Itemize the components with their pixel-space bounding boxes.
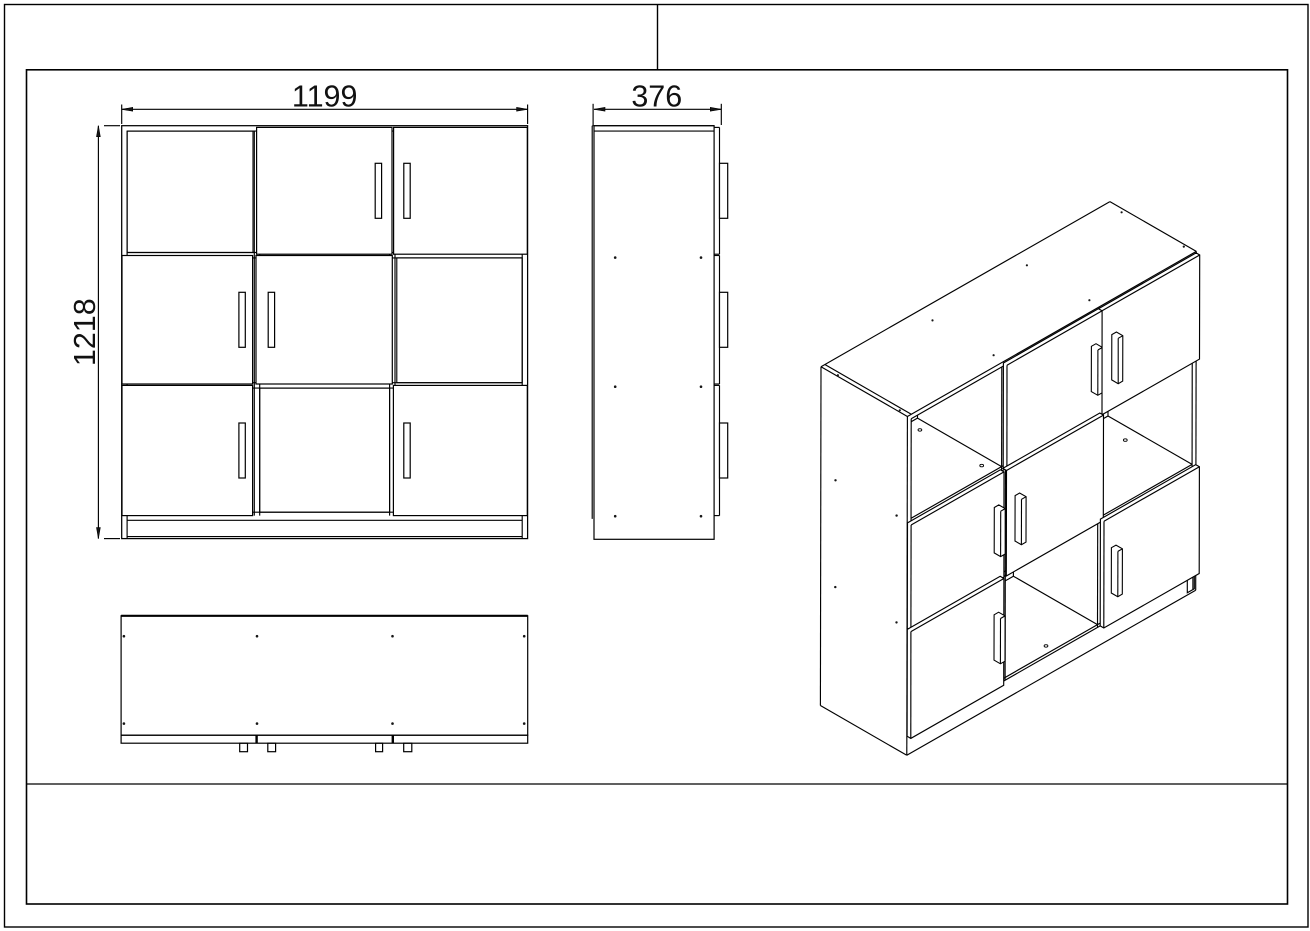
svg-text:1199: 1199 [292,79,358,113]
svg-text:376: 376 [631,79,682,113]
svg-text:1218: 1218 [68,298,102,366]
